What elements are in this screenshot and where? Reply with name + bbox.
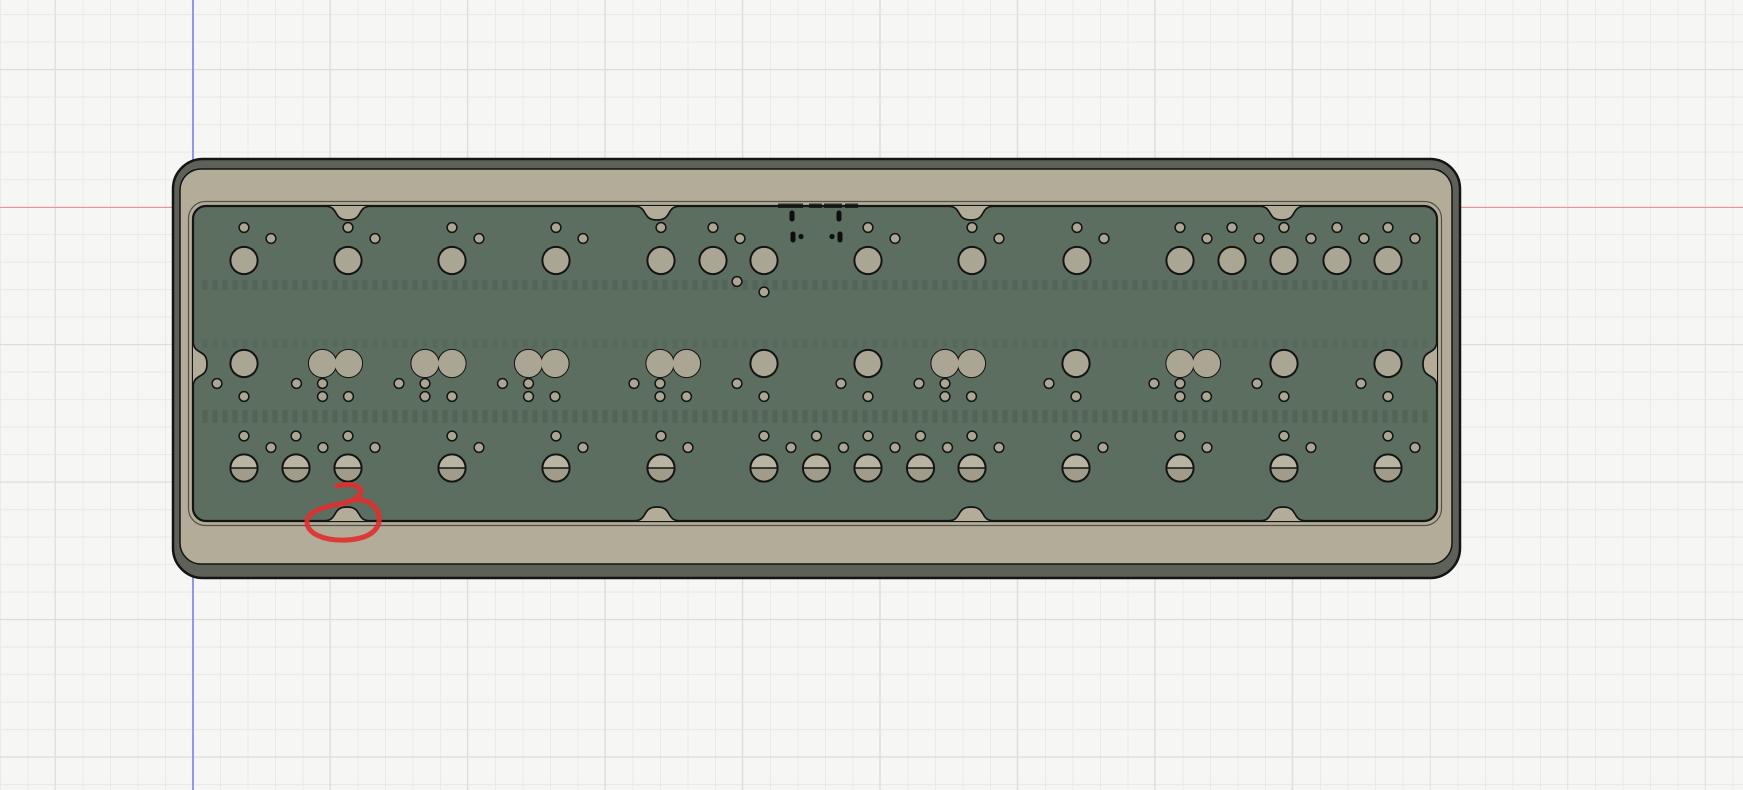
small-hole[interactable] (420, 392, 430, 402)
small-hole[interactable] (370, 234, 380, 244)
small-hole[interactable] (655, 379, 665, 389)
small-hole[interactable] (370, 443, 380, 453)
small-hole[interactable] (1279, 431, 1289, 441)
mounting-hole[interactable] (854, 350, 881, 377)
small-hole[interactable] (629, 379, 639, 389)
texture-band (199, 280, 1431, 290)
small-hole[interactable] (890, 234, 900, 244)
usb-rim-mark (778, 204, 803, 209)
mounting-hole-pair[interactable] (309, 350, 336, 377)
small-hole[interactable] (994, 443, 1004, 453)
small-hole[interactable] (863, 431, 873, 441)
small-hole[interactable] (940, 379, 950, 389)
small-hole[interactable] (1175, 431, 1185, 441)
small-hole[interactable] (1202, 392, 1212, 402)
usb-slot-hole (837, 211, 842, 222)
small-hole[interactable] (839, 443, 849, 453)
small-hole[interactable] (1279, 223, 1289, 233)
mounting-hole-pair[interactable] (931, 350, 958, 377)
small-hole[interactable] (447, 223, 457, 233)
keyboard-case-model[interactable] (0, 0, 1743, 790)
mounting-hole[interactable] (750, 350, 777, 377)
small-hole[interactable] (914, 379, 924, 389)
mounting-hole[interactable] (334, 247, 361, 274)
small-hole[interactable] (1332, 223, 1342, 233)
usb-slot-hole (791, 232, 796, 243)
small-hole[interactable] (732, 379, 742, 389)
small-hole[interactable] (940, 392, 950, 402)
mounting-hole-pair[interactable] (1193, 350, 1220, 377)
small-hole[interactable] (1072, 223, 1082, 233)
small-hole[interactable] (943, 443, 953, 453)
texture-band (199, 410, 1431, 423)
small-hole[interactable] (498, 379, 508, 389)
small-hole[interactable] (1202, 443, 1212, 453)
small-hole[interactable] (1356, 379, 1366, 389)
small-hole[interactable] (394, 379, 404, 389)
mounting-hole-pair[interactable] (673, 350, 700, 377)
small-hole[interactable] (447, 431, 457, 441)
small-hole[interactable] (318, 443, 328, 453)
mounting-hole[interactable] (1218, 247, 1245, 274)
small-hole[interactable] (916, 431, 926, 441)
mounting-hole[interactable] (854, 247, 881, 274)
usb-dot-hole (798, 234, 803, 239)
small-hole[interactable] (1279, 392, 1289, 402)
small-hole[interactable] (318, 379, 328, 389)
small-hole[interactable] (967, 431, 977, 441)
mounting-hole-pair[interactable] (541, 350, 568, 377)
small-hole[interactable] (212, 379, 222, 389)
small-hole[interactable] (759, 392, 769, 402)
mounting-hole[interactable] (750, 247, 777, 274)
small-hole[interactable] (1410, 234, 1420, 244)
small-hole[interactable] (239, 392, 249, 402)
small-hole[interactable] (343, 223, 353, 233)
mounting-hole[interactable] (542, 247, 569, 274)
small-hole[interactable] (420, 379, 430, 389)
mounting-hole[interactable] (1374, 247, 1401, 274)
small-hole[interactable] (683, 443, 693, 453)
mounting-hole[interactable] (1062, 350, 1089, 377)
small-hole[interactable] (1383, 223, 1393, 233)
cad-viewport-canvas[interactable] (0, 0, 1743, 790)
small-hole[interactable] (551, 223, 561, 233)
small-hole[interactable] (239, 223, 249, 233)
small-hole[interactable] (1175, 379, 1185, 389)
small-hole[interactable] (759, 287, 769, 297)
small-hole[interactable] (1254, 234, 1264, 244)
small-hole[interactable] (1227, 223, 1237, 233)
small-hole[interactable] (1383, 392, 1393, 402)
mounting-hole[interactable] (699, 247, 726, 274)
mounting-hole-pair[interactable] (646, 350, 673, 377)
mounting-hole[interactable] (1374, 350, 1401, 377)
small-hole[interactable] (578, 234, 588, 244)
mounting-hole[interactable] (1323, 247, 1350, 274)
mounting-hole-pair[interactable] (335, 350, 362, 377)
texture-band (199, 339, 1431, 348)
small-hole[interactable] (551, 431, 561, 441)
mounting-hole-pair[interactable] (515, 350, 542, 377)
mounting-hole-pair[interactable] (438, 350, 465, 377)
mounting-hole[interactable] (958, 247, 985, 274)
small-hole[interactable] (1099, 234, 1109, 244)
small-hole[interactable] (1149, 379, 1159, 389)
small-hole[interactable] (550, 392, 560, 402)
mounting-hole[interactable] (230, 350, 257, 377)
small-hole[interactable] (1306, 234, 1316, 244)
small-hole[interactable] (318, 392, 328, 402)
small-hole[interactable] (967, 392, 977, 402)
small-hole[interactable] (343, 431, 353, 441)
small-hole[interactable] (786, 443, 796, 453)
usb-rim-mark (809, 204, 822, 209)
mounting-hole[interactable] (1166, 247, 1193, 274)
small-hole[interactable] (578, 443, 588, 453)
small-hole[interactable] (1383, 431, 1393, 441)
small-hole[interactable] (759, 431, 769, 441)
small-hole[interactable] (1175, 392, 1185, 402)
small-hole[interactable] (524, 379, 534, 389)
small-hole[interactable] (1071, 431, 1081, 441)
small-hole[interactable] (656, 223, 666, 233)
small-hole[interactable] (890, 443, 900, 453)
usb-rim-mark (824, 204, 842, 209)
small-hole[interactable] (291, 431, 301, 441)
usb-dot-hole (829, 234, 834, 239)
usb-rim-mark (845, 204, 858, 209)
small-hole[interactable] (266, 234, 276, 244)
small-hole[interactable] (708, 223, 718, 233)
small-hole[interactable] (1410, 443, 1420, 453)
mounting-hole[interactable] (230, 247, 257, 274)
mounting-hole-pair[interactable] (411, 350, 438, 377)
small-hole[interactable] (967, 223, 977, 233)
small-hole[interactable] (732, 277, 742, 287)
small-hole[interactable] (1071, 392, 1081, 402)
small-hole[interactable] (863, 223, 873, 233)
small-hole[interactable] (812, 431, 822, 441)
mounting-hole[interactable] (1270, 350, 1297, 377)
small-hole[interactable] (292, 379, 302, 389)
small-hole[interactable] (1306, 443, 1316, 453)
mounting-hole-pair[interactable] (1166, 350, 1193, 377)
mounting-hole[interactable] (438, 247, 465, 274)
mounting-hole[interactable] (1063, 247, 1090, 274)
small-hole[interactable] (682, 392, 692, 402)
small-hole[interactable] (656, 431, 666, 441)
small-hole[interactable] (1098, 443, 1108, 453)
small-hole[interactable] (447, 392, 457, 402)
small-hole[interactable] (836, 379, 846, 389)
small-hole[interactable] (1175, 223, 1185, 233)
small-hole[interactable] (994, 234, 1004, 244)
small-hole[interactable] (863, 392, 873, 402)
small-hole[interactable] (239, 431, 249, 441)
mounting-hole[interactable] (1270, 247, 1297, 274)
small-hole[interactable] (474, 443, 484, 453)
small-hole[interactable] (1044, 379, 1054, 389)
small-hole[interactable] (1359, 234, 1369, 244)
mounting-hole-pair[interactable] (958, 350, 985, 377)
small-hole[interactable] (735, 234, 745, 244)
mounting-hole[interactable] (647, 247, 674, 274)
small-hole[interactable] (266, 443, 276, 453)
small-hole[interactable] (1202, 234, 1212, 244)
small-hole[interactable] (344, 392, 354, 402)
small-hole[interactable] (655, 392, 665, 402)
usb-slot-hole (838, 232, 843, 243)
usb-slot-hole (790, 211, 795, 222)
small-hole[interactable] (524, 392, 534, 402)
small-hole[interactable] (474, 234, 484, 244)
small-hole[interactable] (1252, 379, 1262, 389)
